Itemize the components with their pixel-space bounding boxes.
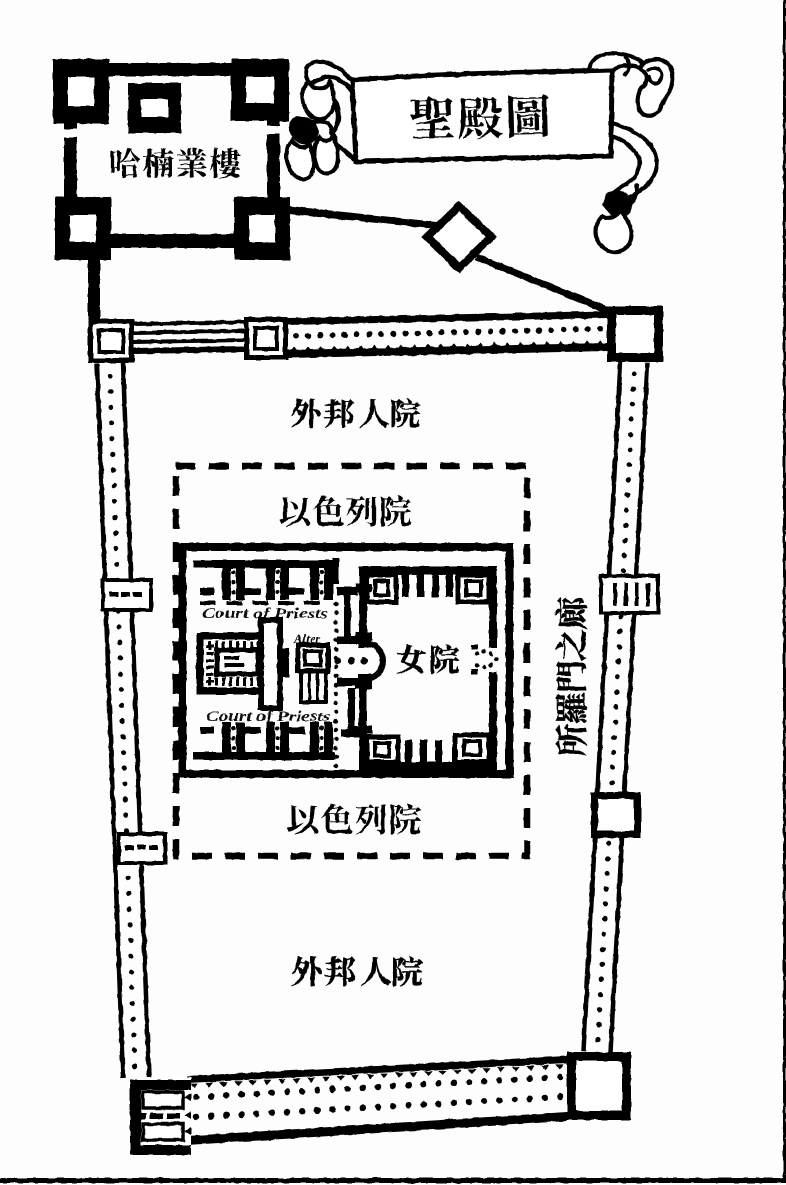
svg-text:Court of Priests: Court of Priests: [206, 709, 330, 725]
